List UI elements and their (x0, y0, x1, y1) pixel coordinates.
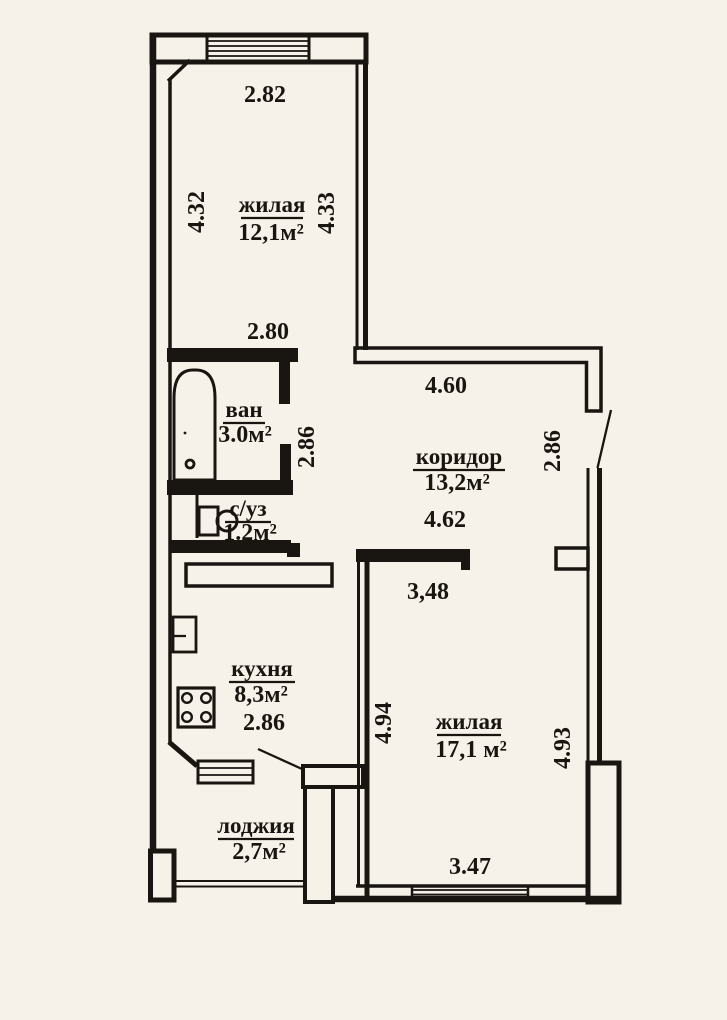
dim-room1-left: 4.32 (184, 191, 210, 233)
room-area-living1: 12,1м² (238, 220, 304, 246)
room-label-kitchen: кухня (231, 656, 293, 681)
wall-bath-right-lower (280, 444, 291, 482)
sink-symbol (173, 617, 196, 652)
dim-bottom-window: 3.47 (449, 854, 491, 880)
dim-kitchen-width: 2.86 (243, 710, 285, 736)
wall-top-band (152, 35, 366, 62)
room-area-kitchen: 8,3м² (234, 682, 288, 708)
dim-room2-left: 4.94 (371, 702, 397, 744)
wall-corner-chamfer-kitchen (169, 742, 197, 766)
wall-column-bottom-left (151, 851, 175, 900)
room-area-loggia: 2,7м² (232, 839, 286, 865)
dim-room1-right: 4.33 (314, 192, 340, 234)
room-area-wc: 1.2м² (223, 520, 277, 546)
room-area-corridor: 13,2м² (424, 470, 490, 496)
room-area-living2: 17,1 м² (435, 737, 507, 763)
bathtub-drain (186, 460, 194, 468)
floor-plan-page: 2.82 4.32 4.33 2.80 2.86 4.60 2.86 4.62 … (0, 0, 727, 1020)
room-label-living1: жилая (239, 192, 306, 217)
room-label-living2: жилая (436, 709, 503, 734)
dim-corridor-top: 4.60 (425, 373, 467, 399)
window-symbol-top (207, 41, 309, 56)
dim-bath-right: 2.86 (294, 426, 320, 468)
loggia-railing (175, 881, 305, 887)
dim-top-window: 2.82 (244, 82, 286, 108)
wall-bath-bottom (167, 480, 293, 495)
dim-bath-top: 2.80 (247, 319, 289, 345)
wall-loggia-corner-block (303, 766, 363, 787)
floor-plan-drawing: 2.82 4.32 4.33 2.80 2.86 4.60 2.86 4.62 … (0, 0, 727, 1020)
dim-corridor-bottom: 4.62 (424, 507, 466, 533)
window-symbol-loggia (198, 768, 253, 775)
wall-room2-top-foot (461, 562, 470, 570)
room-label-wc: с/уз (229, 496, 266, 521)
toilet-tank-symbol (199, 507, 218, 535)
dim-entrance-side: 2.86 (540, 430, 566, 472)
dim-room2-right: 4.93 (550, 727, 576, 769)
room-label-corridor: коридор (416, 444, 502, 469)
room-label-bath: ван (225, 397, 262, 422)
wall-corridor-top (355, 348, 601, 411)
bathtub-mark (184, 432, 187, 435)
window-frame-loggia (198, 761, 253, 783)
wall-room2-top (356, 549, 470, 562)
wall-column-bottom-right (588, 763, 619, 902)
wall-bath-top (167, 348, 298, 362)
door-leaf-entrance (598, 410, 612, 468)
stove-symbol (178, 688, 214, 727)
room-label-loggia: лоджия (217, 813, 295, 838)
dim-room2-top: 3,48 (407, 579, 449, 605)
wall-wc-bottom-notch (287, 543, 300, 557)
wall-bath-door-jamb (279, 362, 290, 404)
wall-loggia-right (305, 787, 333, 902)
wall-stub-room2-top-right (556, 548, 588, 569)
room-area-bath: 3.0м² (218, 422, 272, 448)
wall-duct (186, 564, 332, 586)
door-leaf-kitchen (258, 749, 302, 769)
